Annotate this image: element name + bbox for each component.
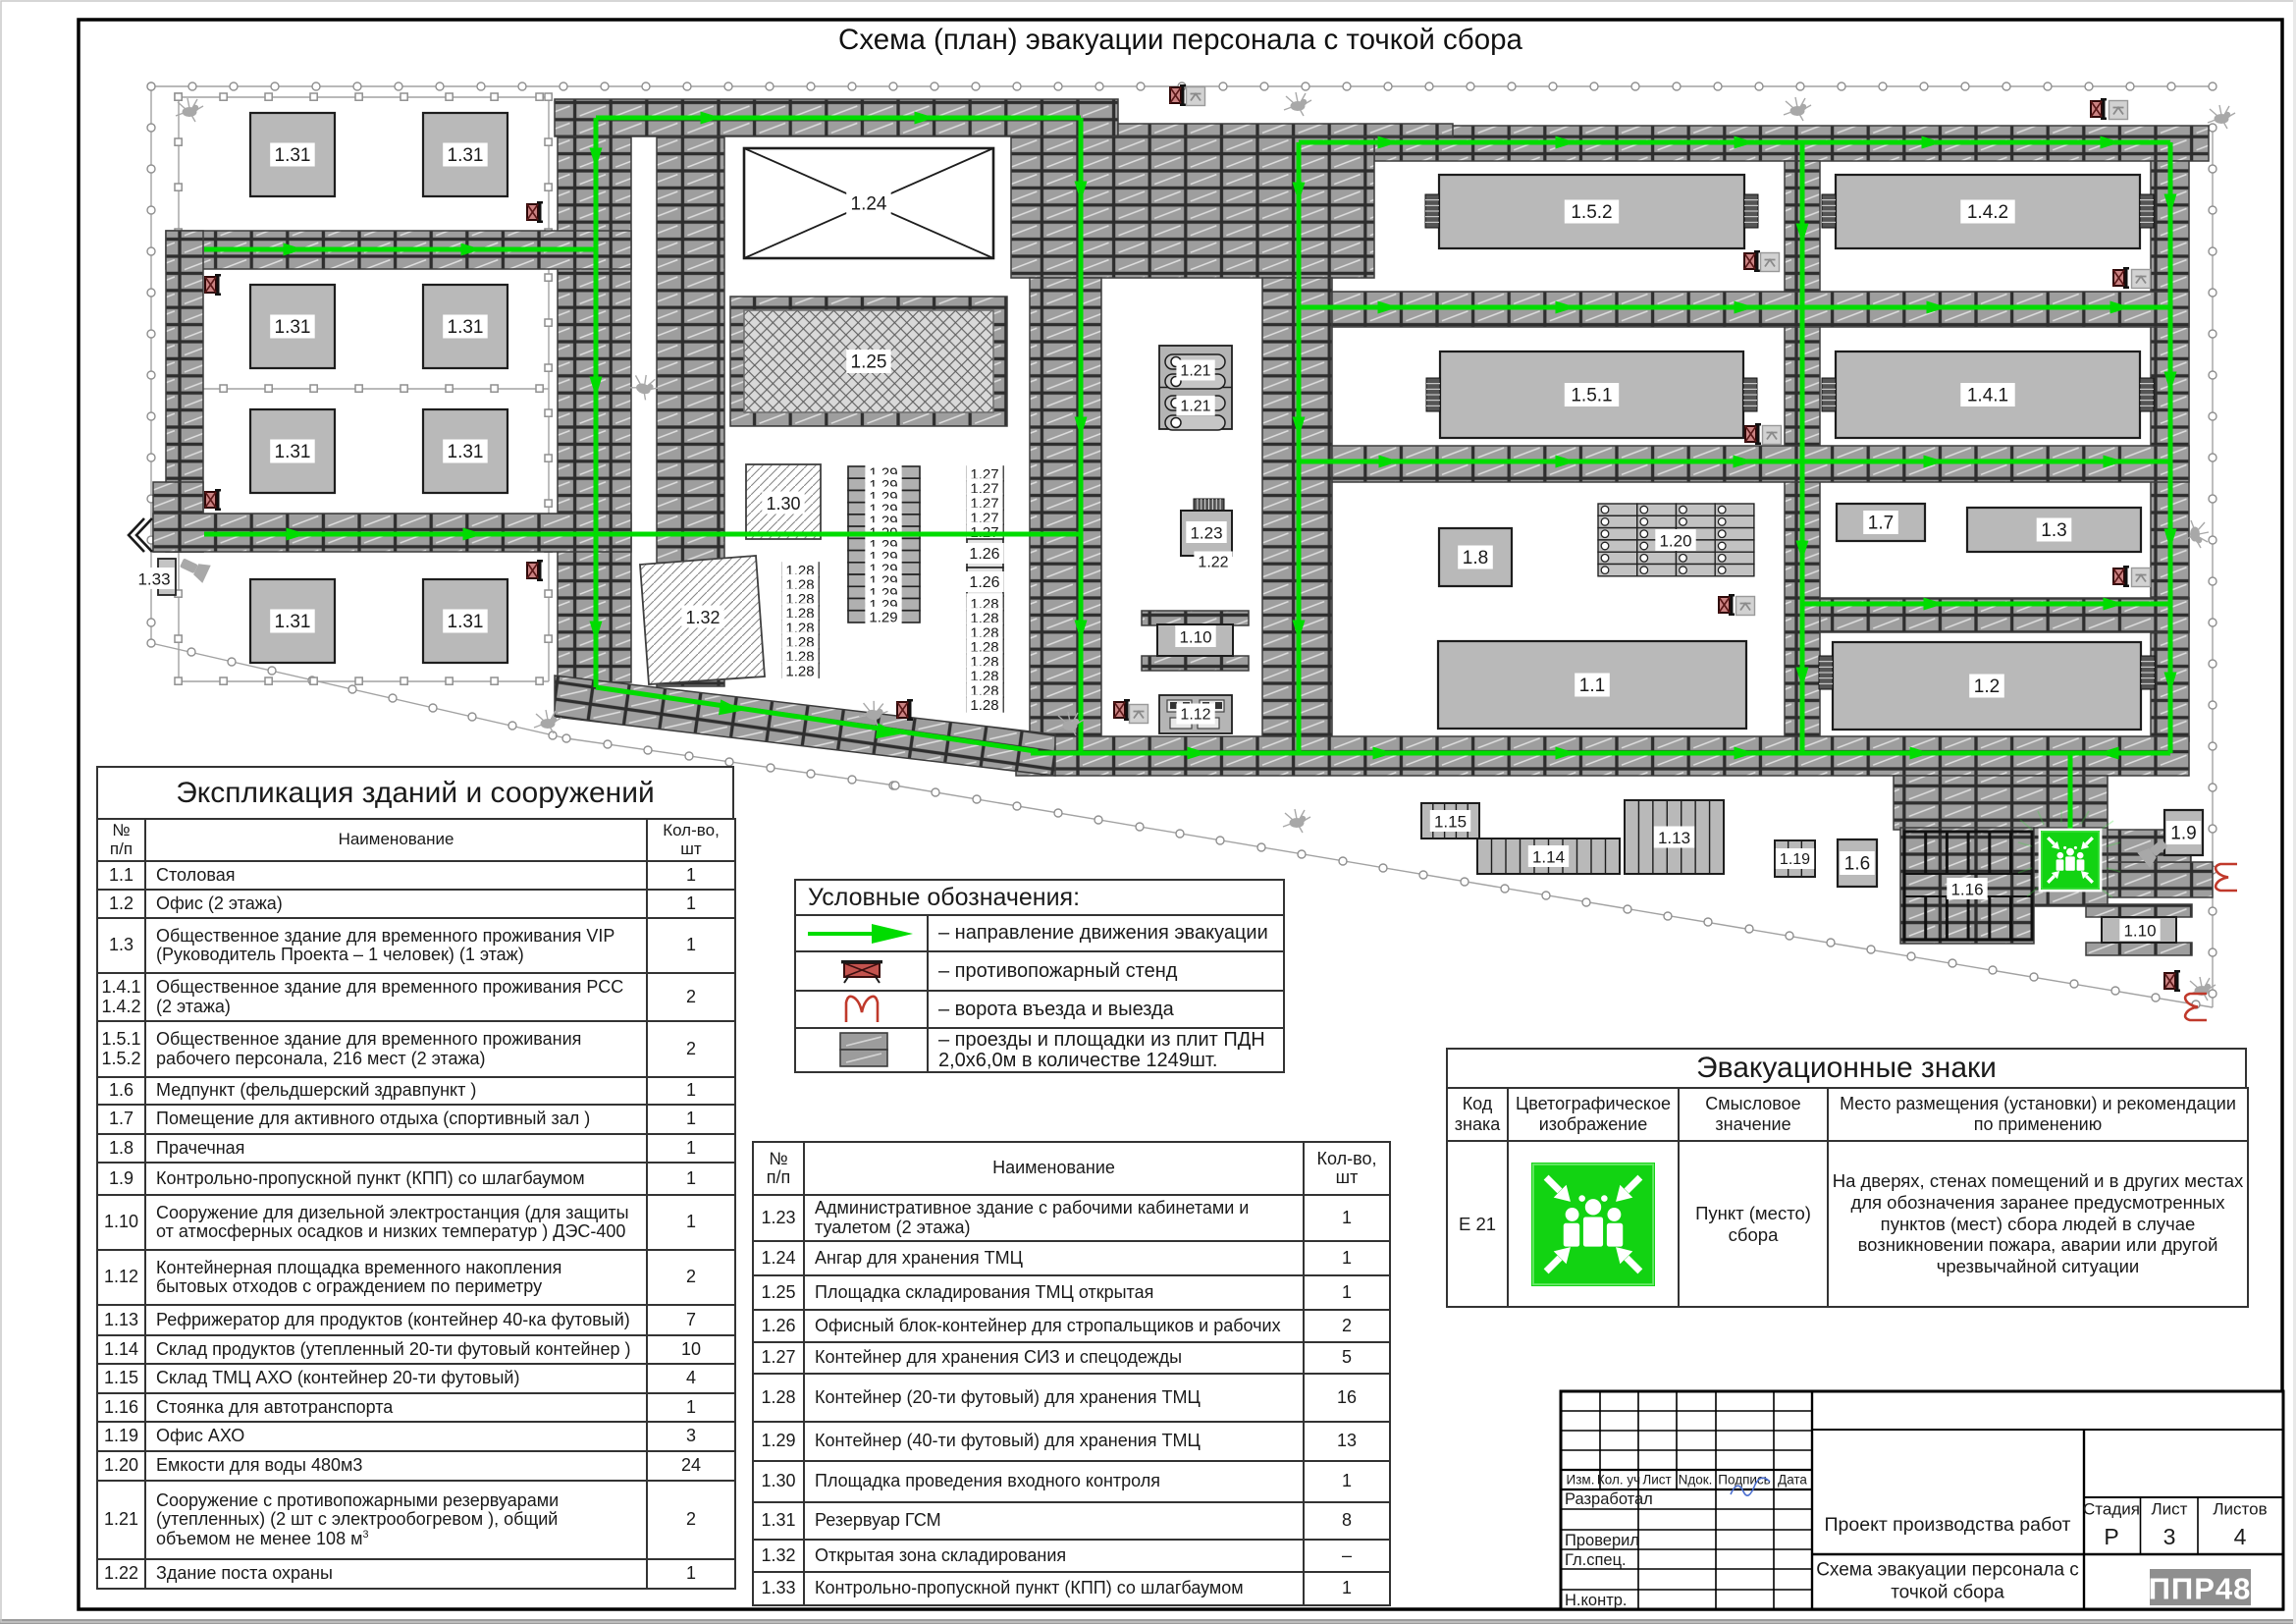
svg-text:Стадия: Стадия — [2083, 1500, 2140, 1519]
svg-text:1.15: 1.15 — [1434, 813, 1467, 832]
svg-text:Изм.: Изм. — [1567, 1473, 1595, 1488]
svg-text:1.23: 1.23 — [1190, 524, 1222, 543]
svg-text:точкой сбора: точкой сбора — [1891, 1583, 2004, 1603]
svg-text:Кол. уч: Кол. уч — [1597, 1473, 1640, 1488]
svg-text:1.19: 1.19 — [1780, 851, 1810, 868]
svg-text:1.31: 1.31 — [275, 612, 311, 632]
svg-text:1.13: 1.13 — [1658, 829, 1690, 847]
svg-text:1.12: 1.12 — [1180, 707, 1210, 724]
svg-text:Проверил: Проверил — [1565, 1532, 1639, 1549]
svg-text:1.31: 1.31 — [275, 442, 311, 462]
svg-text:ППР48: ППР48 — [2149, 1572, 2252, 1606]
svg-text:1.7: 1.7 — [1868, 514, 1894, 534]
svg-text:1.25: 1.25 — [851, 352, 887, 373]
svg-text:1.28: 1.28 — [785, 663, 814, 679]
svg-text:1.33: 1.33 — [137, 570, 170, 589]
svg-text:1.32: 1.32 — [685, 608, 720, 627]
svg-text:1.31: 1.31 — [448, 317, 484, 338]
svg-text:Подпись: Подпись — [1718, 1473, 1770, 1488]
svg-text:1.29: 1.29 — [869, 609, 897, 625]
svg-text:Лист: Лист — [1642, 1473, 1671, 1488]
svg-text:Н.контр.: Н.контр. — [1565, 1592, 1628, 1609]
svg-text:1.6: 1.6 — [1844, 854, 1870, 875]
svg-text:1.2: 1.2 — [1974, 677, 2000, 697]
svg-text:1.30: 1.30 — [766, 494, 800, 514]
svg-text:1.31: 1.31 — [448, 145, 484, 166]
svg-text:1.10: 1.10 — [1179, 628, 1211, 647]
svg-text:1.22: 1.22 — [1198, 555, 1228, 571]
svg-text:1.16: 1.16 — [1950, 881, 1983, 899]
svg-text:1.31: 1.31 — [275, 317, 311, 338]
svg-text:1.8: 1.8 — [1463, 548, 1488, 568]
svg-text:1.5.1: 1.5.1 — [1571, 386, 1612, 406]
svg-text:1.14: 1.14 — [1532, 848, 1565, 867]
svg-text:1.1: 1.1 — [1579, 676, 1605, 696]
svg-text:1.26: 1.26 — [969, 574, 999, 591]
svg-text:1.4.2: 1.4.2 — [1967, 202, 2008, 223]
svg-text:1.31: 1.31 — [448, 442, 484, 462]
svg-text:1.21: 1.21 — [1180, 399, 1210, 415]
svg-text:Листов: Листов — [2213, 1500, 2267, 1519]
svg-text:1.3: 1.3 — [2041, 520, 2066, 541]
svg-text:1.24: 1.24 — [851, 194, 887, 215]
svg-text:Гл.спец.: Гл.спец. — [1565, 1551, 1627, 1569]
svg-text:Лист: Лист — [2152, 1500, 2188, 1519]
svg-text:1.26: 1.26 — [969, 546, 999, 563]
svg-text:1.28: 1.28 — [970, 697, 998, 714]
svg-text:1.20: 1.20 — [1659, 532, 1691, 551]
svg-text:Схема эвакуации персонала с: Схема эвакуации персонала с — [1816, 1560, 2079, 1581]
svg-text:Р: Р — [2104, 1524, 2118, 1549]
svg-text:3: 3 — [2163, 1524, 2176, 1549]
svg-text:1.31: 1.31 — [448, 612, 484, 632]
svg-text:1.9: 1.9 — [2170, 824, 2196, 844]
svg-text:1.21: 1.21 — [1180, 363, 1210, 380]
svg-text:4: 4 — [2234, 1524, 2247, 1549]
svg-text:1.31: 1.31 — [275, 145, 311, 166]
svg-text:1.4.1: 1.4.1 — [1967, 386, 2008, 406]
svg-text:Дата: Дата — [1778, 1473, 1807, 1488]
svg-text:Nдок.: Nдок. — [1679, 1473, 1713, 1488]
svg-text:1.5.2: 1.5.2 — [1571, 202, 1612, 223]
svg-text:Проект производства работ: Проект производства работ — [1825, 1514, 2071, 1536]
svg-text:1.10: 1.10 — [2123, 922, 2156, 941]
svg-text:Разработал: Разработал — [1565, 1490, 1653, 1508]
